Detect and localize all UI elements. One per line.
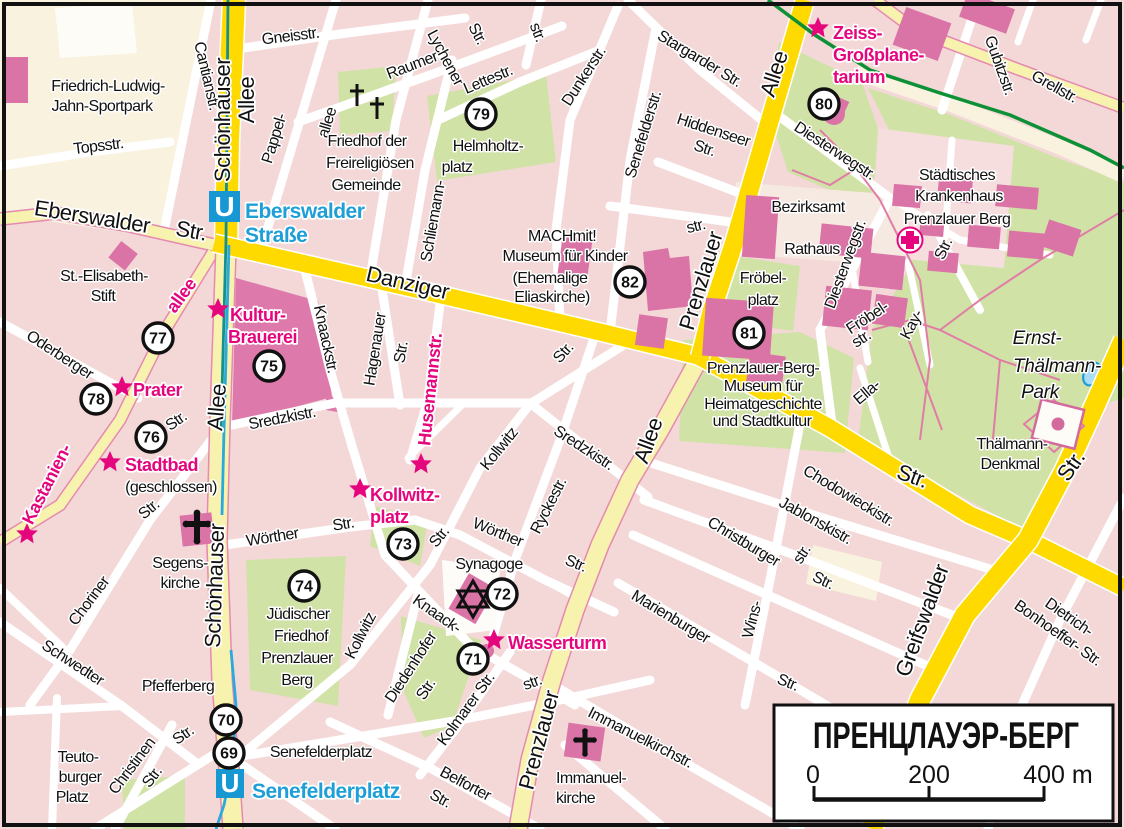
- svg-text:Städtisches: Städtisches: [919, 167, 996, 184]
- svg-text:Platz: Platz: [56, 789, 89, 806]
- svg-text:Fröbel-: Fröbel-: [740, 270, 787, 287]
- svg-text:Bezirksamt: Bezirksamt: [771, 199, 845, 216]
- svg-text:Segens-: Segens-: [152, 555, 208, 572]
- svg-text:Wasserturm: Wasserturm: [508, 633, 606, 653]
- svg-text:(Ehemalige: (Ehemalige: [513, 270, 589, 287]
- svg-text:78: 78: [87, 392, 105, 409]
- svg-text:Str.: Str.: [391, 340, 411, 364]
- svg-text:platz: platz: [442, 159, 473, 176]
- svg-text:und Stadtkultur: und Stadtkultur: [713, 413, 813, 430]
- svg-text:75: 75: [260, 359, 278, 376]
- svg-text:Museum für Kinder: Museum für Kinder: [503, 248, 629, 265]
- svg-text:Prenzlauer Berg: Prenzlauer Berg: [904, 211, 1011, 228]
- svg-text:platz: platz: [748, 292, 779, 309]
- svg-text:kirche: kirche: [556, 790, 596, 807]
- svg-text:76: 76: [142, 430, 160, 447]
- svg-text:Kultur-: Kultur-: [230, 305, 286, 325]
- svg-text:400 m: 400 m: [1023, 761, 1092, 789]
- svg-text:Friedhof der: Friedhof der: [327, 133, 407, 150]
- svg-text:Teuto-: Teuto-: [58, 749, 99, 766]
- svg-text:Stift: Stift: [91, 288, 117, 305]
- svg-text:MACHmit!: MACHmit!: [528, 228, 596, 245]
- svg-text:Ernst-: Ernst-: [1013, 328, 1062, 349]
- svg-text:Gemeinde: Gemeinde: [331, 177, 401, 194]
- svg-text:Denkmal: Denkmal: [981, 456, 1040, 473]
- svg-text:(geschlossen): (geschlossen): [125, 479, 217, 496]
- svg-text:80: 80: [815, 97, 833, 114]
- svg-text:72: 72: [493, 587, 511, 604]
- svg-text:U: U: [221, 768, 240, 798]
- svg-text:Berg: Berg: [281, 672, 312, 689]
- svg-text:tarium: tarium: [833, 67, 885, 87]
- svg-text:Allee: Allee: [234, 77, 259, 124]
- svg-text:Eliaskirche): Eliaskirche): [514, 289, 590, 306]
- svg-text:Immanuel-: Immanuel-: [556, 770, 626, 787]
- svg-text:Helmholtz-: Helmholtz-: [453, 138, 524, 155]
- svg-text:kirche: kirche: [160, 575, 200, 592]
- svg-text:St.-Elisabeth-: St.-Elisabeth-: [60, 268, 148, 285]
- svg-text:Kollwitz-: Kollwitz-: [370, 485, 440, 505]
- svg-text:Schönhauser: Schönhauser: [200, 523, 229, 648]
- svg-text:Brauerei: Brauerei: [228, 327, 297, 347]
- svg-text:Eberswalder: Eberswalder: [245, 200, 365, 223]
- svg-text:71: 71: [464, 652, 482, 669]
- svg-text:Prenzlauer-Berg-: Prenzlauer-Berg-: [707, 360, 820, 377]
- svg-text:ПРЕНЦЛАУЭР-БЕРГ: ПРЕНЦЛАУЭР-БЕРГ: [813, 715, 1079, 756]
- svg-text:Park: Park: [1021, 382, 1061, 403]
- svg-text:82: 82: [621, 275, 639, 292]
- svg-text:73: 73: [394, 537, 412, 554]
- svg-text:77: 77: [149, 331, 167, 348]
- svg-text:Zeiss-: Zeiss-: [833, 23, 883, 43]
- svg-text:platz: platz: [370, 507, 409, 527]
- svg-text:Straße: Straße: [245, 224, 307, 247]
- svg-text:Großplane-: Großplane-: [833, 45, 925, 65]
- svg-text:70: 70: [217, 713, 235, 730]
- svg-text:0: 0: [806, 761, 820, 789]
- svg-text:Senefelderplatz: Senefelderplatz: [270, 744, 373, 761]
- svg-text:Freireligiösen: Freireligiösen: [326, 155, 414, 172]
- svg-text:Rathaus: Rathaus: [784, 241, 840, 258]
- svg-text:burger: burger: [59, 769, 103, 786]
- svg-text:Stadtbad: Stadtbad: [125, 455, 198, 475]
- svg-text:Str.: Str.: [174, 216, 209, 246]
- svg-text:Allee: Allee: [202, 383, 231, 432]
- svg-text:69: 69: [220, 746, 238, 763]
- svg-text:Thälmann-: Thälmann-: [1013, 356, 1101, 377]
- svg-text:81: 81: [740, 326, 758, 343]
- svg-text:Friedrich-Ludwig-: Friedrich-Ludwig-: [51, 78, 165, 95]
- svg-text:74: 74: [295, 579, 313, 596]
- svg-text:Prenzlauer: Prenzlauer: [261, 650, 334, 667]
- svg-text:Jahn-Sportpark: Jahn-Sportpark: [52, 98, 155, 115]
- svg-text:Senefelderplatz: Senefelderplatz: [252, 780, 400, 803]
- svg-text:Prater: Prater: [133, 380, 183, 400]
- svg-text:200: 200: [908, 761, 950, 789]
- svg-text:Jüdischer: Jüdischer: [266, 606, 330, 623]
- svg-text:Str.: Str.: [331, 514, 355, 534]
- svg-text:U: U: [214, 191, 234, 222]
- svg-text:Krankenhaus: Krankenhaus: [915, 188, 1003, 205]
- svg-text:Thälmann-: Thälmann-: [976, 436, 1047, 453]
- svg-text:Synagoge: Synagoge: [455, 556, 523, 573]
- svg-text:79: 79: [472, 107, 490, 124]
- svg-text:Heimatgeschichte: Heimatgeschichte: [704, 396, 822, 413]
- svg-text:Pfefferberg: Pfefferberg: [142, 678, 214, 695]
- svg-text:Friedhof: Friedhof: [274, 628, 329, 645]
- svg-text:Museum für: Museum für: [724, 378, 804, 395]
- svg-text:Schönhauser: Schönhauser: [210, 58, 235, 182]
